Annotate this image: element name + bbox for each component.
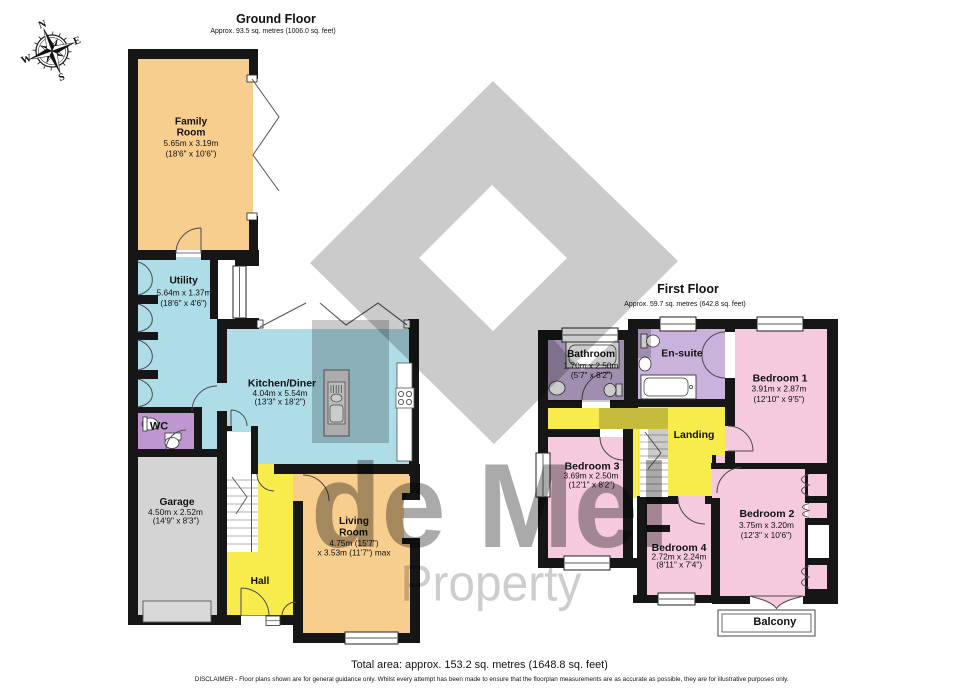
svg-text:Family: Family [175,117,208,128]
svg-text:Approx. 59.7 sq. metres (642.8: Approx. 59.7 sq. metres (642.8 sq. feet) [624,301,745,308]
svg-text:Ground Floor: Ground Floor [236,12,316,26]
svg-text:(18'6" x 10'6"): (18'6" x 10'6") [165,149,216,159]
svg-text:(13'3" x 18'2"): (13'3" x 18'2") [254,397,305,407]
svg-text:de Mel: de Mel [311,439,670,573]
svg-text:(18'6" x 4'6"): (18'6" x 4'6") [160,298,207,308]
svg-text:Approx. 93.5 sq. metres (1006.: Approx. 93.5 sq. metres (1006.0 sq. feet… [210,28,335,35]
svg-text:Property: Property [401,555,582,612]
svg-text:WC: WC [150,421,168,433]
svg-text:Balcony: Balcony [753,616,797,628]
svg-text:(14'9" x 8'3"): (14'9" x 8'3") [153,516,200,526]
svg-text:First Floor: First Floor [657,282,719,296]
svg-text:5.65m x 3.19m: 5.65m x 3.19m [164,138,219,148]
svg-text:3.75m x 3.20m: 3.75m x 3.20m [739,520,794,530]
svg-text:E: E [72,35,82,48]
svg-text:W: W [20,53,34,67]
svg-text:Room: Room [177,127,206,138]
svg-text:Landing: Landing [674,429,715,441]
svg-text:Utility: Utility [169,276,198,287]
svg-text:(12'3" x 10'6"): (12'3" x 10'6") [741,530,792,540]
svg-text:DISCLAIMER - Floor plans show: DISCLAIMER - Floor plans shown are for g… [195,676,789,683]
svg-text:Total area: approx. 153.2 sq.: Total area: approx. 153.2 sq. metres (16… [351,659,608,671]
svg-text:Bedroom 2: Bedroom 2 [739,508,794,520]
svg-text:S: S [57,72,66,84]
svg-text:3.91m x 2.87m: 3.91m x 2.87m [752,383,807,393]
svg-text:Hall: Hall [251,576,270,587]
svg-text:5.64m x 1.37m: 5.64m x 1.37m [157,288,212,298]
svg-text:N: N [37,19,48,32]
svg-text:En-suite: En-suite [661,348,703,360]
svg-text:(12'10" x 9'5"): (12'10" x 9'5") [753,394,804,404]
